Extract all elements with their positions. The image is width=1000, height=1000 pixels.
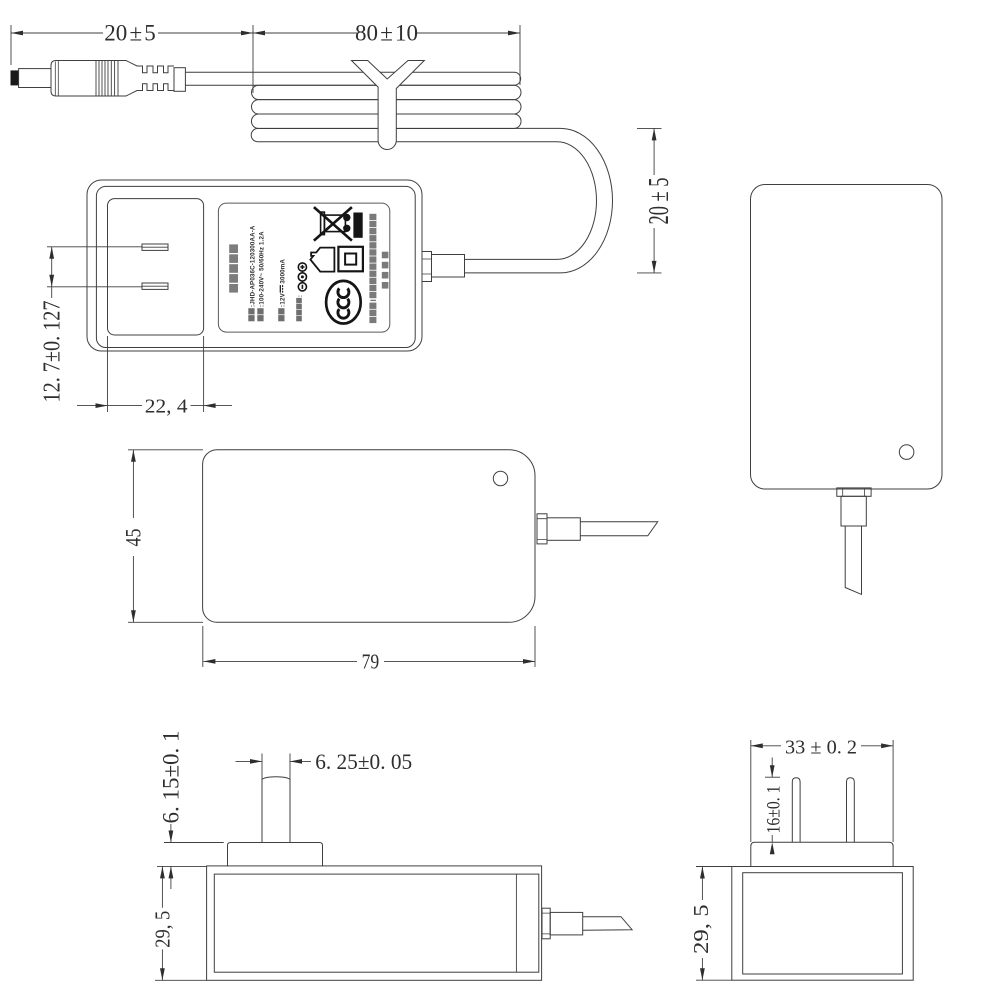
svg-text:20 ± 5: 20 ± 5 bbox=[104, 21, 156, 46]
svg-text:JHD-AP036C-120300AA-A: JHD-AP036C-120300AA-A bbox=[250, 225, 257, 305]
svg-text:6. 15±0. 1: 6. 15±0. 1 bbox=[158, 731, 183, 824]
svg-text:6. 25±0. 05: 6. 25±0. 05 bbox=[315, 749, 412, 774]
svg-text:3000mA: 3000mA bbox=[280, 259, 287, 284]
svg-text:12V: 12V bbox=[280, 292, 287, 304]
svg-text:16±0. 1: 16±0. 1 bbox=[763, 786, 784, 834]
svg-text:45: 45 bbox=[121, 529, 146, 547]
svg-text:80 ± 10: 80 ± 10 bbox=[355, 21, 418, 46]
svg-text:100-240V~ 50/60Hz 1.2A: 100-240V~ 50/60Hz 1.2A bbox=[259, 231, 266, 305]
svg-text:29, 5: 29, 5 bbox=[150, 911, 174, 948]
svg-text:22, 4: 22, 4 bbox=[145, 396, 188, 418]
svg-text:20 ± 5: 20 ± 5 bbox=[644, 178, 675, 225]
svg-text:79: 79 bbox=[362, 649, 380, 673]
svg-text:12. 7±0. 127: 12. 7±0. 127 bbox=[40, 301, 66, 403]
svg-text::: : bbox=[298, 295, 304, 297]
svg-text:33 ± 0. 2: 33 ± 0. 2 bbox=[785, 737, 857, 759]
svg-text:29, 5: 29, 5 bbox=[689, 904, 713, 954]
